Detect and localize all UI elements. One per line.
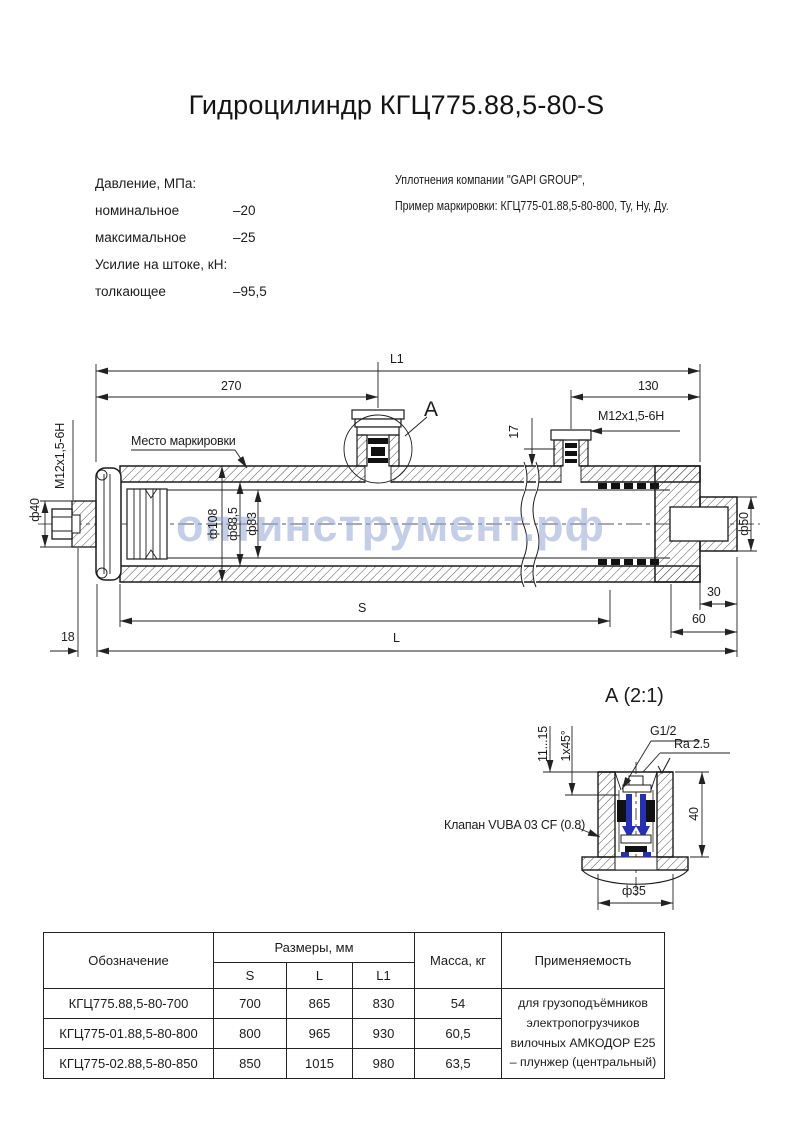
marking-example-note: Пример маркировки: КГЦ775-01.88,5-80-800… — [395, 193, 669, 219]
site-watermark: оптинструмент.рф — [176, 500, 605, 552]
col-header-application: Применяемость — [502, 933, 665, 989]
col-header-mass: Масса, кг — [415, 933, 502, 989]
dim-f83-label: ф83 — [245, 512, 259, 536]
seal-note: Уплотнения компании "GAPI GROUP", — [395, 167, 669, 193]
spec-row: номинальное –20 — [95, 197, 355, 224]
cell-application: для грузоподъёмников электропогрузчиков … — [502, 989, 665, 1079]
left-cap — [96, 468, 121, 580]
cell-l1: 930 — [353, 1019, 415, 1049]
cell-l: 865 — [287, 989, 353, 1019]
table-row: КГЦ775.88,5-80-700 700 865 830 54 для гр… — [44, 989, 665, 1019]
dim-f108-label: ф108 — [206, 509, 220, 539]
cell-mass: 54 — [415, 989, 502, 1019]
dim-l1-label: L1 — [390, 352, 404, 366]
cell-s: 700 — [214, 989, 287, 1019]
col-header-l1: L1 — [353, 963, 415, 989]
spec-label: толкающее — [95, 278, 233, 305]
cell-designation: КГЦ775-02.88,5-80-850 — [44, 1049, 214, 1079]
cell-l: 965 — [287, 1019, 353, 1049]
dim-270-label: 270 — [221, 379, 241, 393]
spec-table: Обозначение Размеры, мм Масса, кг Примен… — [43, 932, 665, 1079]
dim-130-label: 130 — [638, 379, 658, 393]
dim-depth-range-label: 11...15 — [536, 726, 550, 762]
thread-top-label: М12х1,5-6Н — [598, 409, 664, 423]
plunger-head — [127, 489, 167, 559]
dim-60-label: 60 — [692, 612, 706, 626]
force-header: Усилие на штоке, кН: — [95, 251, 355, 278]
notes-block: Уплотнения компании "GAPI GROUP", Пример… — [395, 167, 669, 219]
cell-mass: 63,5 — [415, 1049, 502, 1079]
spec-value: –95,5 — [233, 278, 267, 305]
spec-label: максимальное — [95, 224, 233, 251]
dim-f40-label: ф40 — [28, 498, 42, 522]
roughness-label: Ra 2.5 — [674, 737, 710, 751]
pressure-header: Давление, МПа: — [95, 170, 355, 197]
dim-f35-label: ф35 — [622, 884, 646, 898]
valve-note-label: Клапан VUBA 03 CF (0.8) — [444, 818, 585, 832]
cell-designation: КГЦ775.88,5-80-700 — [44, 989, 214, 1019]
end-cap — [655, 466, 737, 582]
dim-l-label: L — [393, 631, 400, 645]
cell-s: 800 — [214, 1019, 287, 1049]
specs-block: Давление, МПа: номинальное –20 максималь… — [95, 170, 355, 305]
col-header-s: S — [214, 963, 287, 989]
cell-l1: 980 — [353, 1049, 415, 1079]
cell-designation: КГЦ775-01.88,5-80-800 — [44, 1019, 214, 1049]
detail-title: А (2:1) — [605, 685, 664, 708]
col-header-designation: Обозначение — [44, 933, 214, 989]
drawing-page: { "page": { "title": "Гидроцилиндр КГЦ77… — [0, 0, 793, 1123]
spec-label: номинальное — [95, 197, 233, 224]
col-header-l: L — [287, 963, 353, 989]
detail-ref-label: А — [424, 398, 438, 422]
dim-f885-label: ф88,5 — [226, 507, 240, 541]
spec-row: толкающее –95,5 — [95, 278, 355, 305]
dim-chamfer-label: 1х45° — [559, 730, 573, 761]
spec-value: –20 — [233, 197, 256, 224]
spec-row: максимальное –25 — [95, 224, 355, 251]
dim-30-label: 30 — [707, 585, 721, 599]
spec-value: –25 — [233, 224, 256, 251]
dim-18-label: 18 — [61, 630, 75, 644]
dim-17-label: 17 — [507, 425, 521, 439]
thread-g12-label: G1/2 — [650, 724, 676, 738]
cell-l1: 830 — [353, 989, 415, 1019]
thread-left-label: М12х1,5-6Н — [53, 423, 67, 489]
cell-mass: 60,5 — [415, 1019, 502, 1049]
dim-s-label: S — [358, 601, 366, 615]
col-header-sizes: Размеры, мм — [214, 933, 415, 963]
cell-s: 850 — [214, 1049, 287, 1079]
cell-l: 1015 — [287, 1049, 353, 1079]
page-title: Гидроцилиндр КГЦ775.88,5-80-S — [0, 90, 793, 121]
marking-note-label: Место маркировки — [131, 434, 236, 448]
dim-f50-label: ф50 — [737, 512, 751, 536]
bolt — [52, 501, 96, 547]
dim-40-label: 40 — [687, 807, 701, 821]
